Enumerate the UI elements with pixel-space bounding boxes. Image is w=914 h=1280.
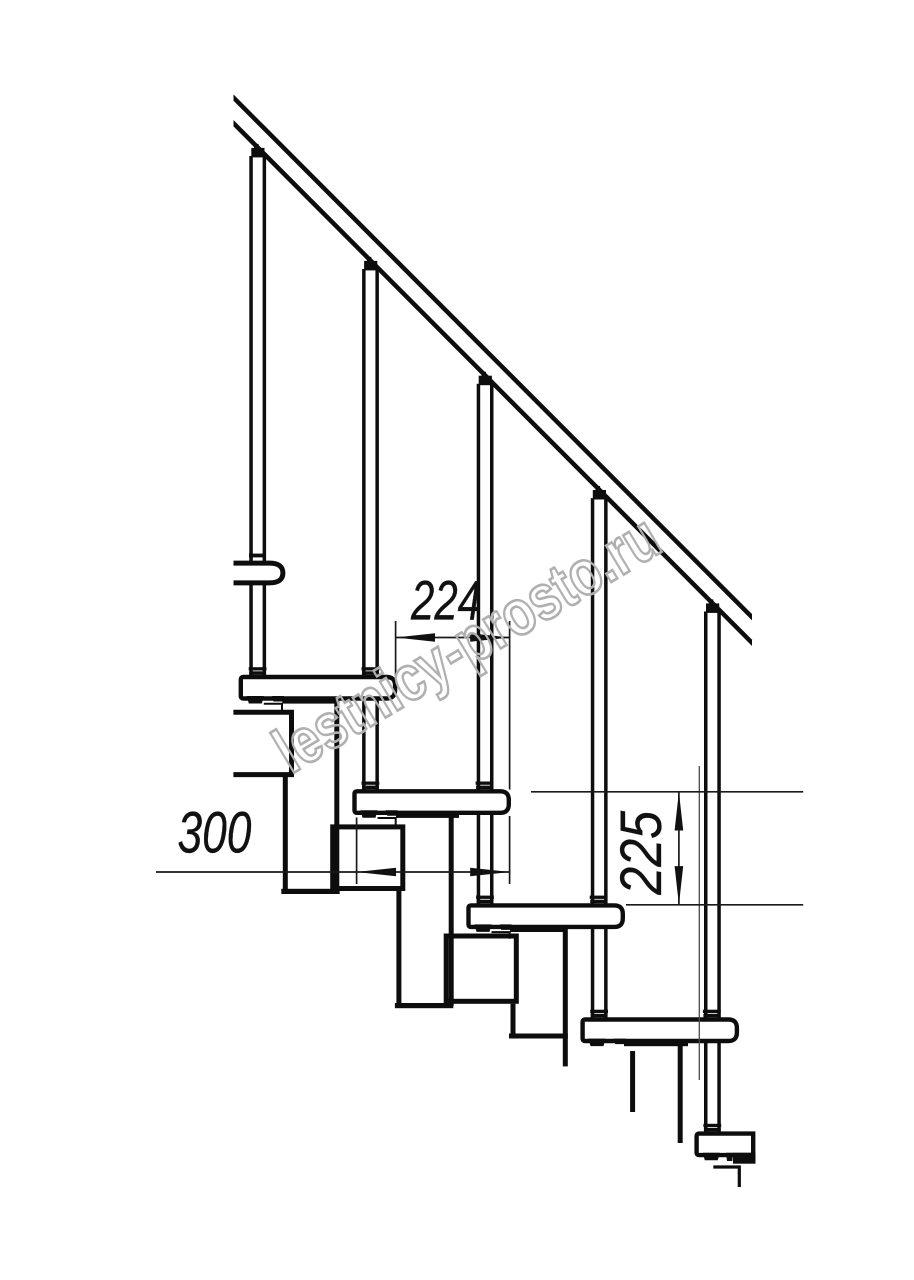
svg-text:225: 225 bbox=[609, 810, 674, 896]
svg-text:300: 300 bbox=[178, 800, 252, 865]
